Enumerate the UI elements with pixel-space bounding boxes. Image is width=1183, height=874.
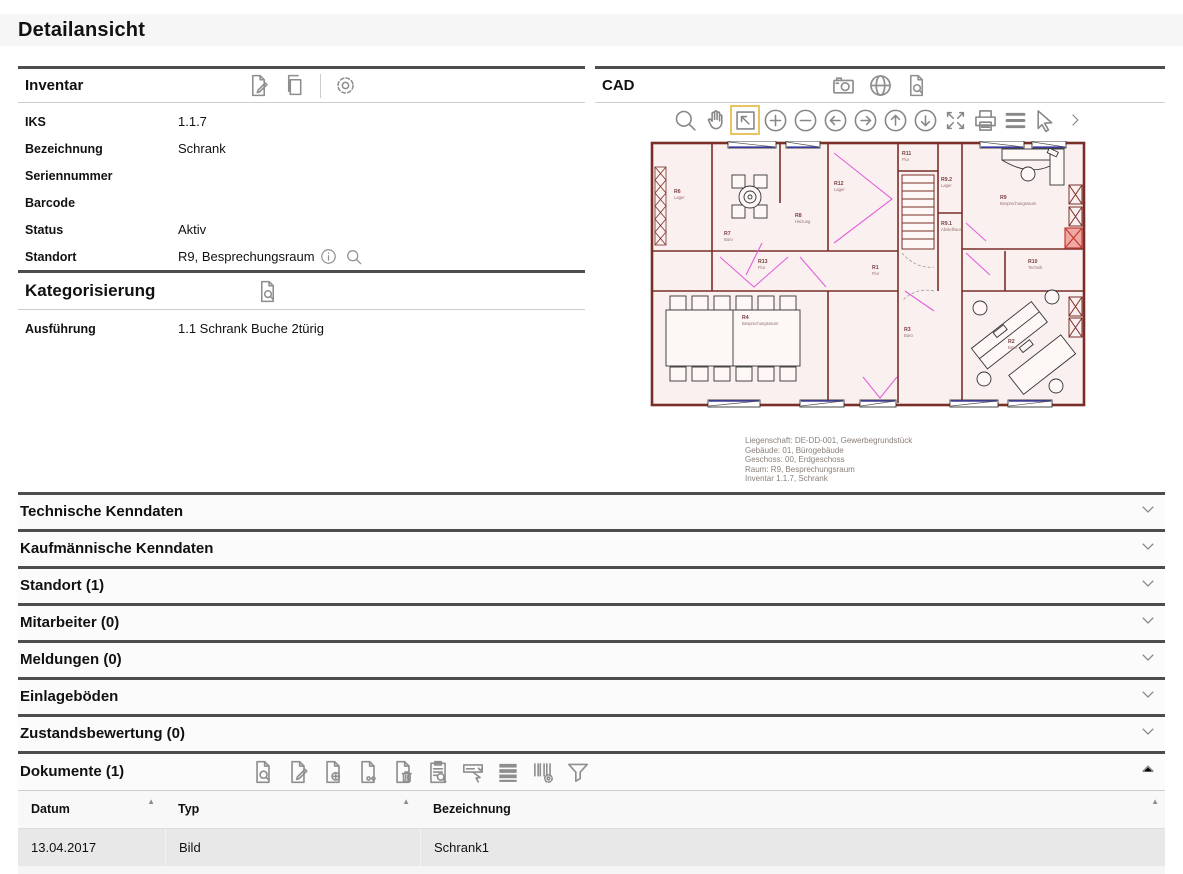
zoom-in-icon[interactable]	[761, 106, 789, 134]
field-label: Seriennummer	[25, 169, 178, 183]
globe-icon[interactable]	[867, 72, 894, 99]
more-chevron-icon[interactable]	[1061, 106, 1089, 134]
room-type: Heizung	[795, 219, 811, 224]
cad-viewer-toolbar	[595, 106, 1165, 134]
room-type: Flur	[902, 157, 910, 162]
cad-header: CAD	[595, 66, 1165, 103]
caption-liegenschaft: Liegenschaft: DE-DD-001, Gewerbegrundstü…	[745, 436, 1165, 446]
cell-typ: Bild	[165, 829, 420, 866]
field-row-barcode: Barcode	[18, 189, 585, 216]
room-type: Abstellraum	[941, 227, 964, 232]
column-header-bezeichnung[interactable]: Bezeichnung	[420, 791, 1165, 828]
main-columns: Inventar IKS 1.1.7 Bezeichnung	[18, 66, 1165, 484]
inventar-title: Inventar	[18, 77, 83, 94]
chevron-down-icon	[1139, 685, 1157, 708]
field-value: 1.1.7	[178, 114, 207, 129]
sort-asc-icon: ▲	[147, 797, 155, 806]
accordion-label: Einlageböden	[20, 688, 118, 705]
field-label: Bezeichnung	[25, 142, 178, 156]
document-search-icon[interactable]	[904, 73, 929, 98]
cad-floorplan[interactable]: R6 Lager R7 Büro R8 Heizung R12 Lager R1…	[650, 141, 1165, 414]
table-row[interactable]: 13.04.2017 Bild Schrank1	[18, 829, 1165, 866]
zoom-window-icon[interactable]	[731, 106, 759, 134]
field-label: Ausführung	[25, 322, 178, 336]
sort-asc-icon: ▲	[402, 797, 410, 806]
accordion-technische-kenndaten[interactable]: Technische Kenndaten	[18, 492, 1165, 529]
inventar-toolbar	[246, 69, 358, 102]
column-header-typ[interactable]: Typ ▲	[165, 791, 420, 828]
kategorisierung-header: Kategorisierung	[18, 273, 585, 310]
chevron-down-icon	[1139, 648, 1157, 671]
field-row-standort: Standort R9, Besprechungsraum	[18, 243, 585, 270]
highlighted-cabinet	[1065, 228, 1082, 248]
kategorisierung-fields: Ausführung 1.1 Schrank Buche 2türig	[18, 310, 585, 342]
field-row-bezeichnung: Bezeichnung Schrank	[18, 135, 585, 162]
accordion-dokumente[interactable]: Dokumente (1)	[18, 751, 1165, 791]
copy-document-icon[interactable]	[283, 73, 308, 98]
chevron-up-icon	[1139, 760, 1157, 783]
menu-lines-icon[interactable]	[1001, 106, 1029, 134]
accordion-label: Mitarbeiter (0)	[20, 614, 119, 631]
accordion-label: Kaufmännische Kenndaten	[20, 540, 213, 557]
room-type: Büro	[724, 237, 734, 242]
kategorisierung-title: Kategorisierung	[18, 281, 155, 301]
field-value: Schrank	[178, 141, 226, 156]
list-rows-icon[interactable]	[495, 759, 521, 785]
accordion-mitarbeiter[interactable]: Mitarbeiter (0)	[18, 603, 1165, 640]
search-icon[interactable]	[344, 247, 364, 267]
accordion-kaufmaennische-kenndaten[interactable]: Kaufmännische Kenndaten	[18, 529, 1165, 566]
column-label: Bezeichnung	[433, 802, 511, 816]
accordion-label: Standort (1)	[20, 577, 104, 594]
standort-icons	[319, 247, 364, 267]
field-value: R9, Besprechungsraum	[178, 249, 315, 264]
camera-icon[interactable]	[830, 72, 857, 99]
pan-down-icon[interactable]	[911, 106, 939, 134]
field-row-status: Status Aktiv	[18, 216, 585, 243]
pan-right-icon[interactable]	[851, 106, 879, 134]
document-link-icon[interactable]	[355, 759, 381, 785]
dokumente-toolbar	[250, 754, 591, 790]
accordion-standort[interactable]: Standort (1)	[18, 566, 1165, 603]
caption-geschoss: Geschoss: 00, Erdgeschoss	[745, 455, 1165, 465]
dokumente-table: Datum ▲ Typ ▲ Bezeichnung ▲ 13.04.2017 B…	[18, 791, 1165, 866]
column-label: Typ	[178, 802, 199, 816]
page-title: Detailansicht	[0, 19, 145, 42]
room-type: Flur	[872, 271, 880, 276]
chevron-down-icon	[1139, 722, 1157, 745]
page-title-band: Detailansicht	[0, 14, 1183, 46]
table-footer-strip	[18, 866, 1165, 874]
chevron-down-icon	[1139, 611, 1157, 634]
print-icon[interactable]	[971, 106, 999, 134]
accordion-label: Dokumente (1)	[20, 763, 124, 780]
pan-up-icon[interactable]	[881, 106, 909, 134]
column-header-datum[interactable]: Datum ▲	[18, 791, 165, 828]
cad-header-toolbar	[830, 69, 929, 102]
accordion-zustandsbewertung[interactable]: Zustandsbewertung (0)	[18, 714, 1165, 751]
toolbar-divider	[320, 74, 321, 98]
kategorisierung-toolbar	[255, 273, 280, 309]
room-type: Büro	[1008, 345, 1018, 350]
cad-caption: Liegenschaft: DE-DD-001, Gewerbegrundstü…	[745, 436, 1165, 484]
document-delete-icon[interactable]	[390, 759, 416, 785]
field-row-ausfuehrung: Ausführung 1.1 Schrank Buche 2türig	[18, 315, 585, 342]
document-search-icon[interactable]	[250, 759, 276, 785]
zoom-search-icon[interactable]	[671, 106, 699, 134]
edit-document-icon[interactable]	[246, 73, 271, 98]
cad-title: CAD	[595, 77, 635, 94]
accordion-list: Technische Kenndaten Kaufmännische Kennd…	[18, 492, 1165, 791]
room-type: Besprechungsraum	[742, 321, 779, 326]
chevron-down-icon	[1139, 500, 1157, 523]
room-type: Büro	[904, 333, 914, 338]
info-icon[interactable]	[319, 247, 338, 266]
field-row-seriennummer: Seriennummer	[18, 162, 585, 189]
inventar-fields: IKS 1.1.7 Bezeichnung Schrank Seriennumm…	[18, 103, 585, 273]
field-value: Aktiv	[178, 222, 206, 237]
room-type: Lager	[941, 183, 952, 188]
barcode-settings-icon[interactable]	[530, 759, 556, 785]
document-add-icon[interactable]	[320, 759, 346, 785]
cell-bezeichnung: Schrank1	[420, 829, 1165, 866]
room-type: Technik	[1028, 265, 1043, 270]
column-label: Datum	[31, 802, 70, 816]
field-label: IKS	[25, 115, 178, 129]
document-edit-icon[interactable]	[285, 759, 311, 785]
room-type: Lager	[674, 195, 685, 200]
caption-inventar: Inventar 1.1.7, Schrank	[745, 474, 1165, 484]
settings-gear-icon[interactable]	[333, 73, 358, 98]
pan-hand-icon[interactable]	[701, 106, 729, 134]
filter-funnel-icon[interactable]	[565, 759, 591, 785]
accordion-label: Technische Kenndaten	[20, 503, 183, 520]
accordion-meldungen[interactable]: Meldungen (0)	[18, 640, 1165, 677]
clipboard-search-icon[interactable]	[425, 759, 451, 785]
accordion-einlageboeden[interactable]: Einlageböden	[18, 677, 1165, 714]
chevron-down-icon	[1139, 537, 1157, 560]
field-value: 1.1 Schrank Buche 2türig	[178, 321, 324, 336]
cad-panel: CAD	[595, 66, 1165, 484]
room-type: Lager	[834, 187, 845, 192]
field-row-iks: IKS 1.1.7	[18, 108, 585, 135]
accordion-label: Meldungen (0)	[20, 651, 122, 668]
cell-datum: 13.04.2017	[18, 829, 165, 866]
inventar-header: Inventar	[18, 66, 585, 103]
room-type: Flur	[758, 265, 766, 270]
select-dropdown-icon[interactable]	[460, 759, 486, 785]
inventar-panel: Inventar IKS 1.1.7 Bezeichnung	[18, 66, 585, 484]
field-label: Status	[25, 223, 178, 237]
room-type: Besprechungsraum	[1000, 201, 1037, 206]
select-pointer-icon[interactable]	[1031, 106, 1059, 134]
sort-asc-icon: ▲	[1151, 797, 1159, 806]
zoom-out-icon[interactable]	[791, 106, 819, 134]
field-label: Standort	[25, 250, 178, 264]
caption-gebaeude: Gebäude: 01, Bürogebäude	[745, 446, 1165, 456]
accordion-label: Zustandsbewertung (0)	[20, 725, 185, 742]
pan-left-icon[interactable]	[821, 106, 849, 134]
field-label: Barcode	[25, 196, 178, 210]
document-search-icon[interactable]	[255, 279, 280, 304]
dokumente-table-header: Datum ▲ Typ ▲ Bezeichnung ▲	[18, 791, 1165, 829]
chevron-down-icon	[1139, 574, 1157, 597]
caption-raum: Raum: R9, Besprechungsraum	[745, 465, 1165, 475]
zoom-fit-icon[interactable]	[941, 106, 969, 134]
